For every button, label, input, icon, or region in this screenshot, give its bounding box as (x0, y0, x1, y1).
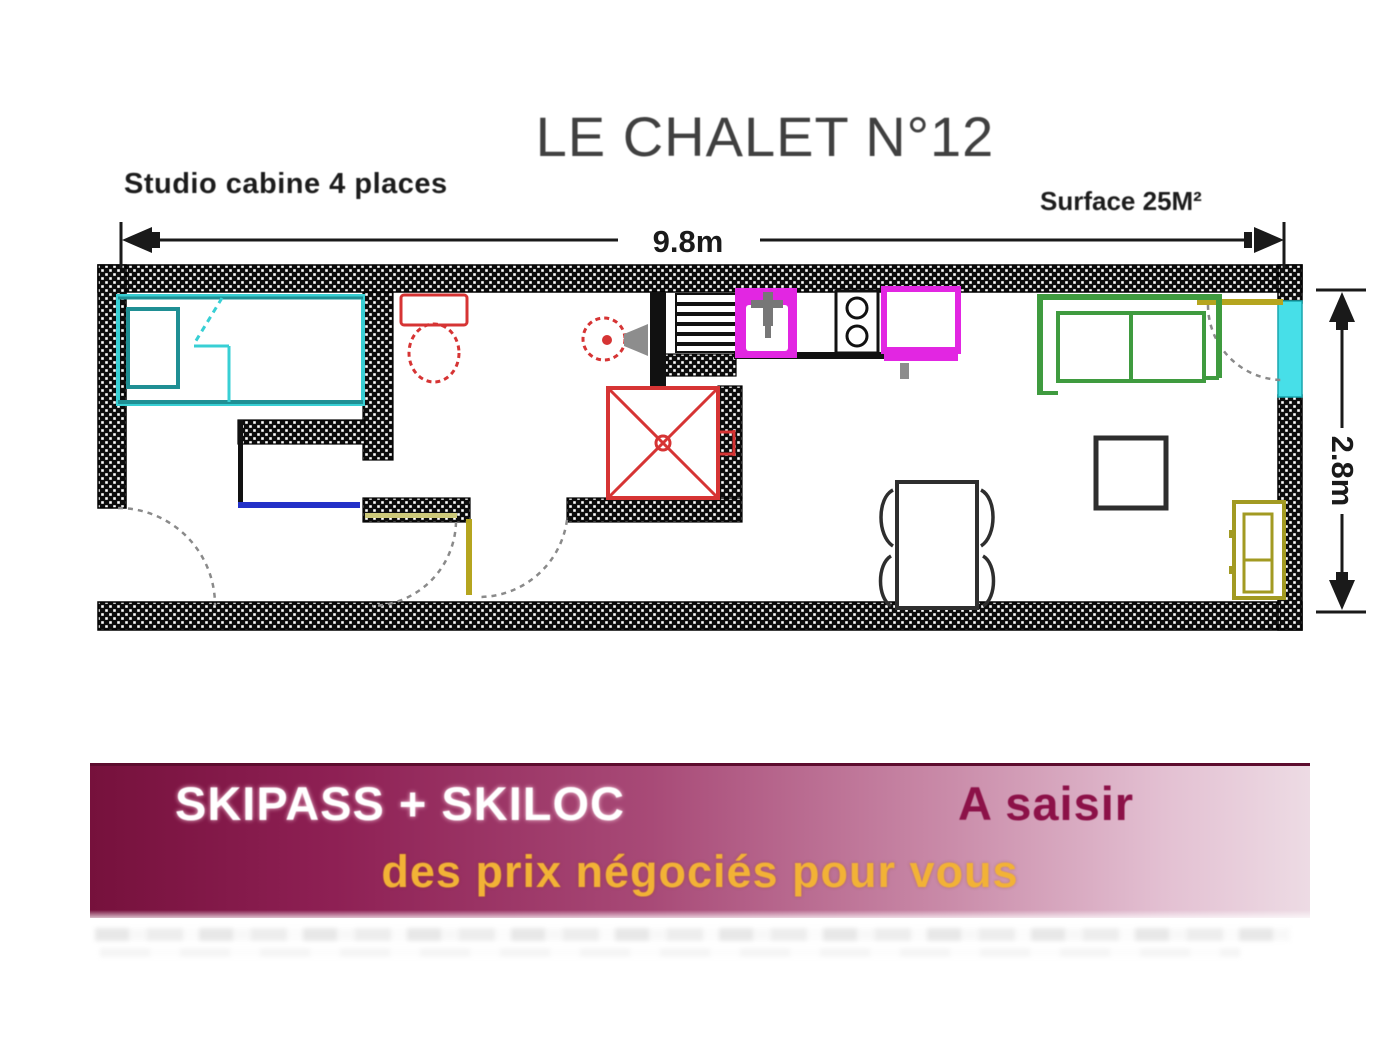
arrow-down-icon (1329, 580, 1355, 610)
arrow-right-icon (1254, 227, 1284, 253)
side-cabinet (1229, 502, 1284, 598)
door-leaf-hall (365, 513, 457, 518)
chair-icon (881, 556, 892, 606)
arrow-left-icon (122, 227, 152, 253)
burner-icon (847, 326, 867, 346)
kitchen-faucet-icon (763, 292, 773, 326)
wall-bath-bottom-right (567, 498, 742, 522)
width-dimension: 9.8m (121, 222, 1284, 268)
wall-right-upper (1278, 265, 1302, 303)
stove (836, 291, 878, 353)
bunk-bed (118, 296, 363, 404)
toilet (401, 295, 467, 382)
chair-icon (881, 490, 893, 546)
width-dim-label: 9.8m (653, 224, 724, 259)
chair-icon (981, 490, 993, 546)
water-heater-shelf (676, 294, 736, 352)
banner-skipass-text: SKIPASS + SKILOC (175, 776, 625, 831)
window (1278, 301, 1302, 397)
washbasin (583, 318, 648, 360)
wall-kitchen-divider (650, 292, 666, 388)
height-dimension: 2.8m (1316, 290, 1366, 612)
door-leaf-bath (466, 519, 472, 595)
bed-ladder (194, 298, 222, 344)
wall-left (98, 265, 126, 508)
dining-table (881, 482, 994, 608)
banner-asaisir-text: A saisir (958, 776, 1134, 831)
closet-front-line (238, 502, 360, 508)
burner-icon (847, 298, 867, 318)
sofa (1037, 297, 1222, 395)
page: LE CHALET N°12 Studio cabine 4 places Su… (0, 0, 1400, 1050)
wall-under-shelf (658, 354, 736, 376)
banner-prices-text: des prix négociés pour vous (90, 846, 1310, 898)
wall-bottom (98, 602, 1302, 630)
arrow-up-icon (1329, 292, 1355, 322)
fridge (884, 289, 958, 379)
wall-top (98, 265, 1302, 292)
wall-shower-right (718, 386, 742, 498)
promo-banner: SKIPASS + SKILOC A saisir des prix négoc… (90, 763, 1310, 918)
coffee-table (1096, 438, 1166, 508)
blurred-fineprint-row (95, 928, 1290, 941)
chair-icon (983, 556, 994, 606)
wall-closet-top (238, 420, 365, 444)
interior-walls (238, 292, 742, 522)
wall-bedroom-bath (363, 292, 393, 460)
sofa-cushion (1131, 313, 1204, 381)
door-swing-entry (118, 508, 215, 605)
door-swing-bath (478, 520, 567, 597)
sofa-cushion (1058, 313, 1131, 381)
bed-pillow (128, 309, 178, 387)
closet-left-edge (238, 420, 243, 508)
wall-bath-bottom-left (363, 498, 470, 522)
shower (608, 388, 734, 498)
kitchen-sink (735, 288, 797, 358)
door-swing-cabine (372, 522, 456, 606)
blurred-fineprint-row (100, 948, 1240, 957)
height-dim-label: 2.8m (1325, 436, 1360, 507)
faucet-icon (624, 324, 648, 356)
